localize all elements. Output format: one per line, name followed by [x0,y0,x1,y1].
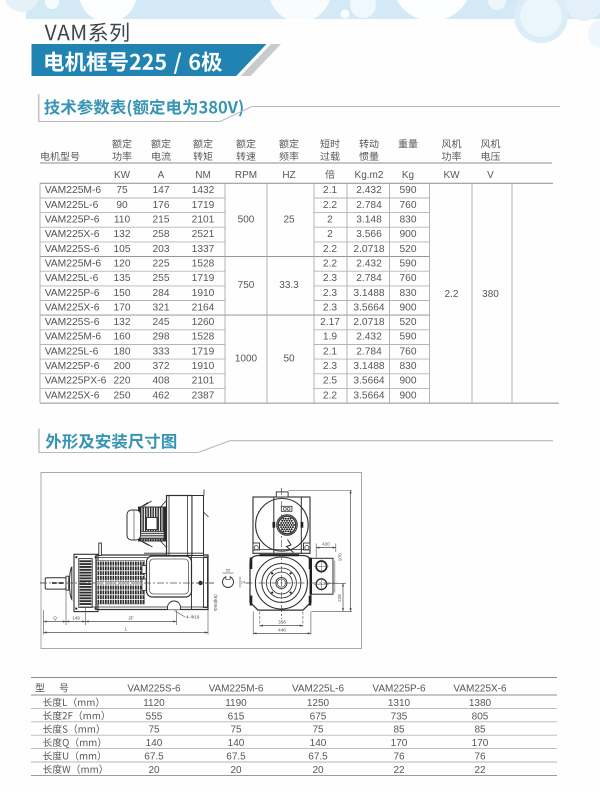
svg-text:150: 150 [114,288,131,299]
svg-text:750: 750 [238,280,255,291]
svg-text:333: 333 [153,346,170,357]
svg-text:225: 225 [337,594,342,602]
svg-text:760: 760 [400,200,417,211]
svg-text:2.5: 2.5 [323,376,337,387]
svg-text:132: 132 [114,317,131,328]
svg-text:215: 215 [153,215,170,226]
svg-text:970: 970 [337,553,342,561]
svg-text:1528: 1528 [192,332,215,343]
svg-text:1260: 1260 [192,317,215,328]
svg-text:830: 830 [400,288,417,299]
svg-text:2101: 2101 [192,376,215,387]
svg-text:76: 76 [474,752,486,763]
svg-text:250: 250 [114,390,131,401]
svg-text:1190: 1190 [225,698,247,709]
svg-text:2.2: 2.2 [323,244,337,255]
svg-text:2.0718: 2.0718 [353,244,384,255]
svg-text:VAM225S-6: VAM225S-6 [45,244,100,255]
svg-text:760: 760 [400,273,417,284]
svg-text:110: 110 [114,215,131,226]
svg-text:2.432: 2.432 [356,332,382,343]
svg-text:VAM225M-6: VAM225M-6 [45,185,102,196]
svg-text:2164: 2164 [192,302,215,313]
svg-text:VAM225P-6: VAM225P-6 [45,288,100,299]
svg-text:1719: 1719 [192,346,215,357]
svg-text:420: 420 [322,542,330,547]
svg-text:2.1: 2.1 [323,346,337,357]
svg-text:140: 140 [146,738,163,749]
svg-text:2.1: 2.1 [323,185,337,196]
svg-text:20: 20 [312,765,324,776]
svg-text:VAM225P-6: VAM225P-6 [372,684,426,695]
svg-text:75: 75 [312,725,324,736]
svg-text:555: 555 [146,711,163,722]
svg-text:120: 120 [114,258,131,269]
svg-text:VAM225L-6: VAM225L-6 [292,684,345,695]
svg-text:Q: Q [53,616,57,621]
svg-text:20: 20 [230,765,242,776]
svg-text:A: A [158,170,165,181]
svg-text:255: 255 [153,273,170,284]
svg-text:176: 176 [153,200,170,211]
svg-text:VAM225M-6: VAM225M-6 [209,684,264,695]
svg-text:3.5664: 3.5664 [353,390,384,401]
svg-text:2.17: 2.17 [320,317,340,328]
svg-text:L: L [125,627,128,632]
svg-text:2.3: 2.3 [323,361,337,372]
svg-text:520: 520 [400,317,417,328]
svg-text:VAM225X-6: VAM225X-6 [453,684,507,695]
svg-text:830: 830 [400,361,417,372]
svg-text:2F: 2F [128,616,134,621]
svg-text:203: 203 [153,244,170,255]
svg-text:180: 180 [114,346,131,357]
svg-text:22: 22 [393,765,405,776]
svg-text:Kg.m2: Kg.m2 [355,170,384,181]
svg-text:VAM225PX-6: VAM225PX-6 [45,376,107,387]
svg-text:RPM: RPM [235,170,257,181]
svg-text:225: 225 [153,258,170,269]
svg-text:1337: 1337 [192,244,215,255]
svg-text:67.5: 67.5 [226,752,246,763]
svg-text:220: 220 [114,376,131,387]
svg-text:3.566: 3.566 [356,229,382,240]
svg-text:2.2: 2.2 [323,200,337,211]
svg-text:380: 380 [482,289,499,300]
svg-text:NM: NM [195,170,211,181]
svg-text:VAM225X-6: VAM225X-6 [45,390,100,401]
svg-text:76: 76 [393,752,405,763]
svg-text:Kg: Kg [402,170,414,181]
svg-text:284: 284 [153,288,170,299]
svg-text:3.5664: 3.5664 [353,302,384,313]
svg-text:760: 760 [400,346,417,357]
svg-text:1120: 1120 [143,698,165,709]
svg-text:170: 170 [472,738,489,749]
svg-text:830: 830 [400,215,417,226]
svg-text:805: 805 [472,711,489,722]
svg-text:2.2: 2.2 [445,289,459,300]
svg-text:135: 135 [114,273,131,284]
svg-text:2.3: 2.3 [323,273,337,284]
svg-text:147: 147 [153,185,170,196]
svg-text:900: 900 [400,390,417,401]
svg-text:132: 132 [114,229,131,240]
svg-text:VAM225P-6: VAM225P-6 [45,361,100,372]
svg-text:140: 140 [228,738,245,749]
svg-text:3.1488: 3.1488 [353,288,384,299]
svg-text:1719: 1719 [192,273,215,284]
svg-text:KW: KW [114,170,131,181]
svg-text:615: 615 [228,711,245,722]
svg-text:VAM225P-6: VAM225P-6 [45,215,100,226]
svg-text:VAM225L-6: VAM225L-6 [45,346,99,357]
svg-text:75: 75 [230,725,242,736]
svg-text:85: 85 [393,725,405,736]
svg-text:2101: 2101 [192,215,215,226]
svg-text:3.1488: 3.1488 [353,361,384,372]
svg-text:140: 140 [310,738,327,749]
svg-text:50: 50 [283,354,295,365]
svg-text:2.784: 2.784 [356,200,382,211]
svg-text:372: 372 [153,361,170,372]
svg-text:900: 900 [400,302,417,313]
svg-text:3.5664: 3.5664 [353,376,384,387]
svg-text:75: 75 [116,185,128,196]
svg-text:149: 149 [72,616,80,621]
svg-text:55: 55 [226,569,230,573]
svg-text:2387: 2387 [192,390,215,401]
svg-text:2.2: 2.2 [323,390,337,401]
svg-text:2.2: 2.2 [323,258,337,269]
svg-text:1719: 1719 [192,200,215,211]
svg-text:VAM225X-6: VAM225X-6 [45,229,100,240]
svg-text:245: 245 [153,317,170,328]
svg-text:67.5: 67.5 [308,752,328,763]
svg-text:2.432: 2.432 [356,185,382,196]
svg-text:408: 408 [153,376,170,387]
svg-text:590: 590 [400,258,417,269]
svg-text:446: 446 [278,627,286,632]
svg-text:1380: 1380 [469,698,492,709]
svg-text:33.3: 33.3 [279,280,299,291]
svg-text:20: 20 [148,765,160,776]
svg-text:2.784: 2.784 [356,273,382,284]
svg-text:2.432: 2.432 [356,258,382,269]
svg-text:258: 258 [153,229,170,240]
svg-text:735: 735 [391,711,408,722]
svg-text:1910: 1910 [192,288,215,299]
svg-text:V: V [487,170,494,181]
svg-text:1910: 1910 [192,361,215,372]
svg-text:VAM225S-6: VAM225S-6 [127,684,181,695]
svg-text:VAM225L-6: VAM225L-6 [45,200,99,211]
svg-text:67.5: 67.5 [144,752,164,763]
svg-text:VAM225M-6: VAM225M-6 [45,258,102,269]
svg-text:2.784: 2.784 [356,346,382,357]
svg-text:Φ19: Φ19 [191,615,200,620]
svg-text:14: 14 [241,581,245,585]
svg-text:2: 2 [327,215,333,226]
svg-text:VAM225S-6: VAM225S-6 [45,317,100,328]
svg-text:356: 356 [278,619,286,624]
svg-text:2521: 2521 [192,229,215,240]
svg-text:Φ50(k6): Φ50(k6) [213,594,218,611]
svg-text:170: 170 [391,738,408,749]
svg-text:105: 105 [114,244,131,255]
svg-text:22: 22 [474,765,486,776]
svg-text:1000: 1000 [235,354,258,365]
svg-text:170: 170 [114,302,131,313]
svg-text:520: 520 [400,244,417,255]
svg-text:1432: 1432 [192,185,215,196]
svg-text:1528: 1528 [192,258,215,269]
svg-text:1.9: 1.9 [323,332,337,343]
svg-text:462: 462 [153,390,170,401]
svg-text:85: 85 [474,725,486,736]
svg-text:1250: 1250 [307,698,330,709]
svg-text:900: 900 [400,229,417,240]
svg-text:160: 160 [114,332,131,343]
svg-text:3.148: 3.148 [356,215,382,226]
svg-text:75: 75 [148,725,160,736]
svg-text:VAM225X-6: VAM225X-6 [45,302,100,313]
svg-text:321: 321 [153,302,170,313]
svg-text:VAM225M-6: VAM225M-6 [45,332,102,343]
svg-text:2.3: 2.3 [323,302,337,313]
svg-text:2.3: 2.3 [323,288,337,299]
svg-text:VAM225L-6: VAM225L-6 [45,273,99,284]
svg-text:2.0718: 2.0718 [353,317,384,328]
svg-text:HZ: HZ [282,170,295,181]
svg-text:90: 90 [116,200,128,211]
svg-text:2: 2 [327,229,333,240]
svg-text:25: 25 [283,214,295,225]
svg-text:590: 590 [400,332,417,343]
svg-text:200: 200 [114,361,131,372]
svg-text:590: 590 [400,185,417,196]
svg-text:298: 298 [153,332,170,343]
svg-text:675: 675 [310,711,327,722]
svg-text:900: 900 [400,376,417,387]
svg-text:500: 500 [238,214,255,225]
svg-text:KW: KW [443,170,460,181]
svg-text:1310: 1310 [388,698,411,709]
